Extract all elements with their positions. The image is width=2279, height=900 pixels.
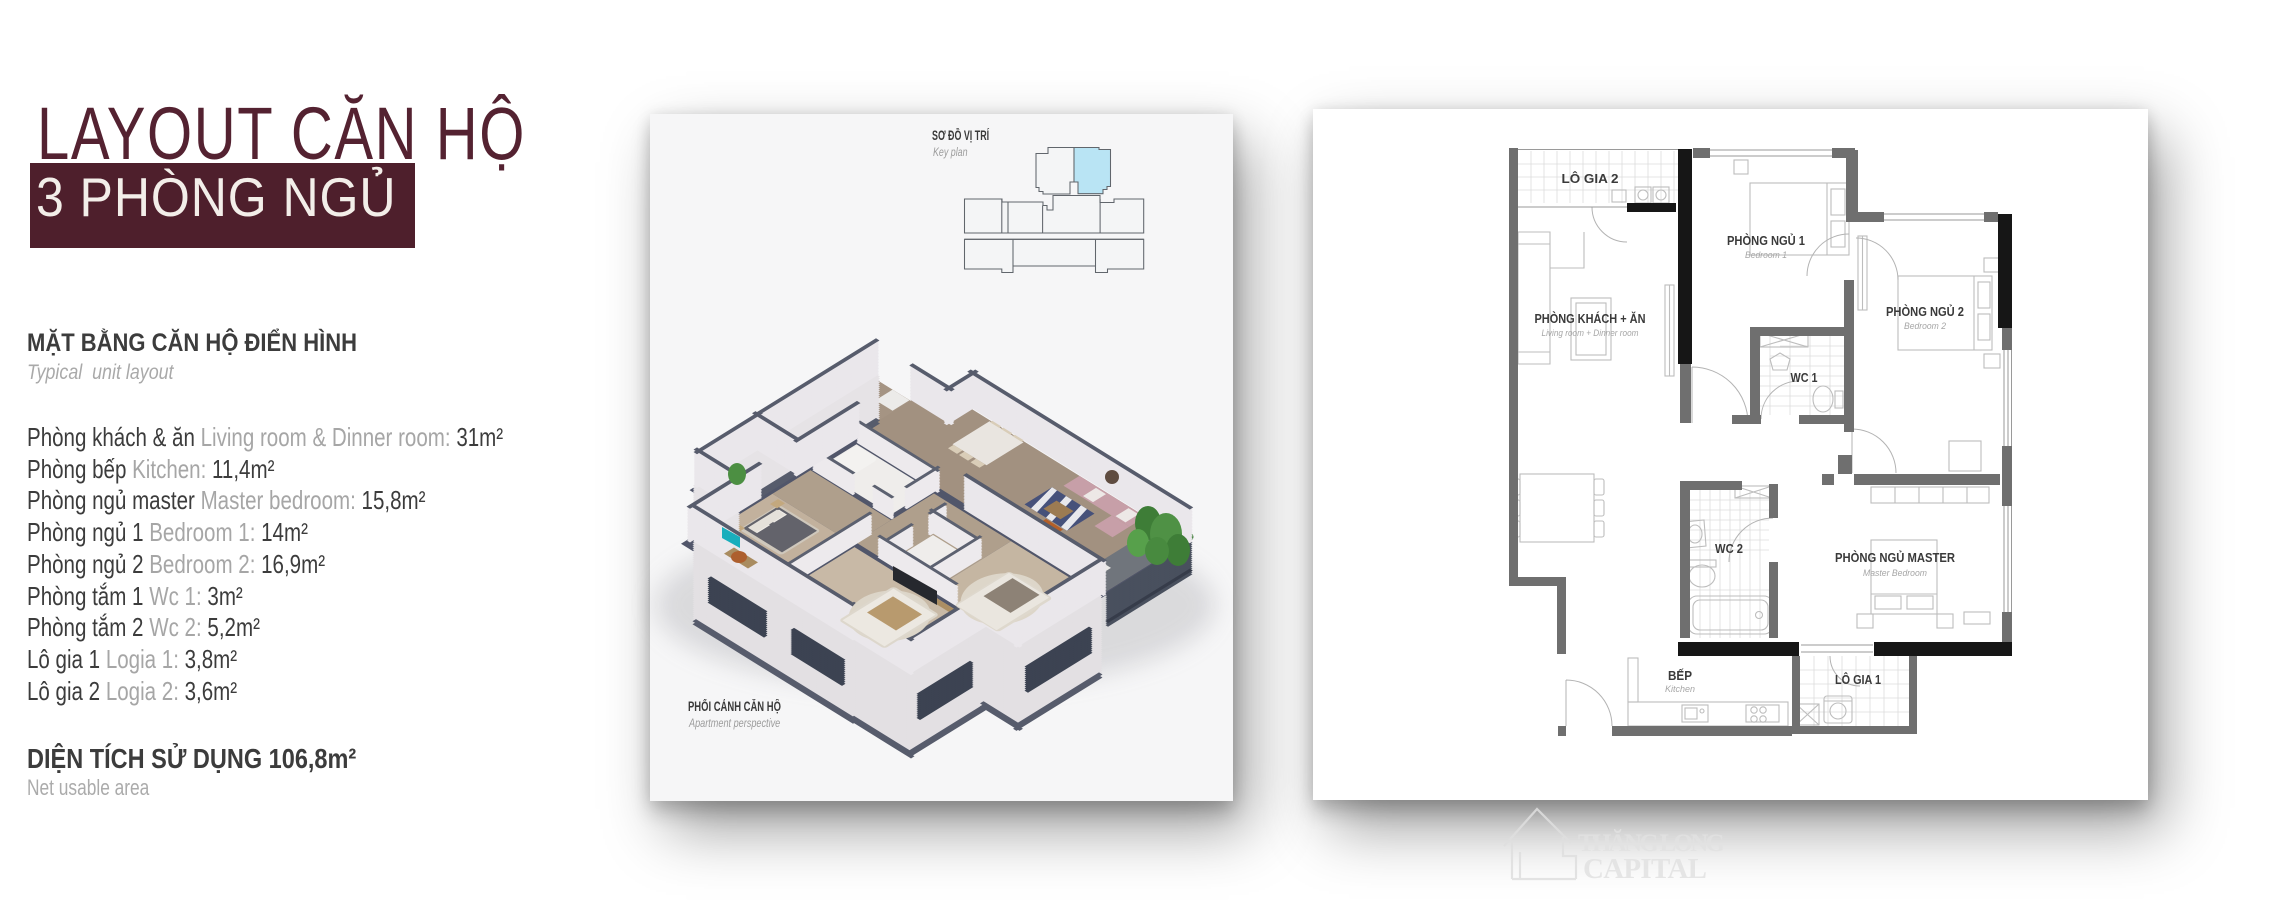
svg-text:CAPITAL: CAPITAL	[1583, 853, 1707, 885]
